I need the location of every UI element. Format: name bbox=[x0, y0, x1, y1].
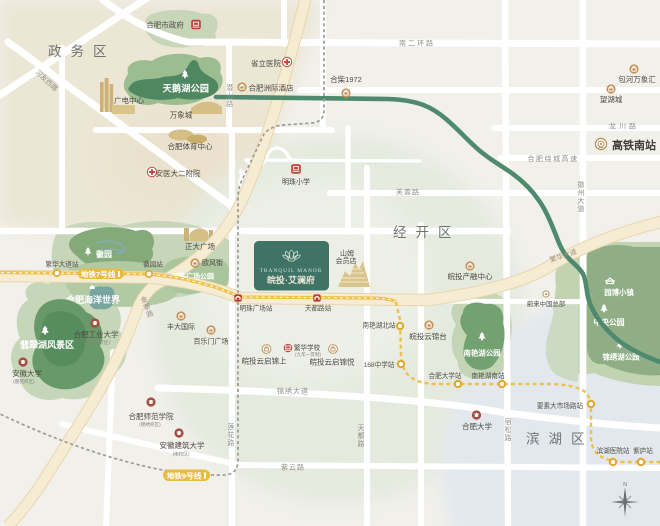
svg-text:天都路站: 天都路站 bbox=[305, 304, 332, 313]
svg-text:TRANQUIL MANOR: TRANQUIL MANOR bbox=[260, 268, 323, 274]
svg-text:合肥大学: 合肥大学 bbox=[462, 421, 492, 431]
svg-text:安医大二附院: 安医大二附院 bbox=[156, 168, 201, 178]
svg-text:(磬苑校区): (磬苑校区) bbox=[13, 378, 35, 385]
svg-text:紫庐站: 紫庐站 bbox=[633, 446, 653, 455]
svg-text:宿松路: 宿松路 bbox=[505, 417, 512, 442]
svg-text:滨湖区: 滨湖区 bbox=[526, 432, 594, 447]
svg-text:省立医院: 省立医院 bbox=[251, 58, 281, 68]
svg-text:芙蓉路: 芙蓉路 bbox=[396, 188, 420, 197]
svg-text:丰大国际: 丰大国际 bbox=[167, 322, 195, 331]
svg-text:合肥体育中心: 合肥体育中心 bbox=[168, 141, 213, 151]
svg-text:合柴1972: 合柴1972 bbox=[330, 74, 362, 84]
svg-text:锦绣湖公园: 锦绣湖公园 bbox=[603, 353, 640, 362]
svg-text:地铁9号线: 地铁9号线 bbox=[167, 471, 202, 481]
svg-text:繁华大道站: 繁华大道站 bbox=[46, 260, 79, 269]
svg-text:合肥师范学院: 合肥师范学院 bbox=[129, 411, 174, 421]
svg-text:蔚来中国总部: 蔚来中国总部 bbox=[527, 299, 566, 308]
svg-text:徽州大道: 徽州大道 bbox=[578, 180, 585, 213]
svg-text:皖投云启锦悦: 皖投云启锦悦 bbox=[310, 357, 355, 367]
svg-text:(翡翠湖校区): (翡翠湖校区) bbox=[84, 339, 110, 346]
svg-text:合肥大学站: 合肥大学站 bbox=[429, 371, 462, 380]
svg-text:翡翠湖风景区: 翡翠湖风景区 bbox=[20, 339, 74, 350]
svg-text:合肥绕城高速: 合肥绕城高速 bbox=[528, 154, 579, 163]
svg-text:安徽大学: 安徽大学 bbox=[12, 368, 42, 378]
svg-text:正大广场: 正大广场 bbox=[185, 241, 215, 251]
svg-text:南艳湖南站: 南艳湖南站 bbox=[472, 371, 505, 380]
svg-text:要素大市场路站: 要素大市场路站 bbox=[537, 401, 584, 410]
svg-text:南艳湖北站: 南艳湖北站 bbox=[363, 321, 396, 330]
svg-text:天都路: 天都路 bbox=[358, 424, 365, 448]
svg-text:皖投产融中心: 皖投产融中心 bbox=[448, 271, 493, 281]
svg-text:山姆: 山姆 bbox=[340, 249, 354, 258]
svg-text:皖投·艾澜府: 皖投·艾澜府 bbox=[267, 274, 315, 285]
svg-text:(锦绣校区): (锦绣校区) bbox=[139, 421, 161, 428]
svg-text:合肥工业大学: 合肥工业大学 bbox=[74, 329, 119, 339]
svg-text:广电中心: 广电中心 bbox=[114, 95, 144, 105]
svg-text:合肥洲际酒店: 合肥洲际酒店 bbox=[249, 83, 294, 93]
svg-text:万象城: 万象城 bbox=[170, 110, 193, 120]
svg-text:天鹅湖公园: 天鹅湖公园 bbox=[163, 83, 210, 94]
svg-text:经开区: 经开区 bbox=[393, 225, 461, 240]
svg-text:N: N bbox=[623, 482, 627, 488]
svg-text:徽园站: 徽园站 bbox=[143, 260, 163, 269]
svg-text:合肥市政府: 合肥市政府 bbox=[146, 20, 184, 30]
svg-text:皖投云锦台: 皖投云锦台 bbox=[409, 331, 447, 341]
svg-text:潜山路: 潜山路 bbox=[226, 83, 233, 108]
svg-text:168中学站: 168中学站 bbox=[364, 360, 395, 369]
svg-text:南二环路: 南二环路 bbox=[399, 39, 435, 48]
svg-text:高铁南站: 高铁南站 bbox=[612, 138, 656, 152]
svg-text:园博小镇: 园博小镇 bbox=[604, 288, 634, 297]
svg-text:百乐门广场: 百乐门广场 bbox=[194, 337, 229, 346]
svg-text:包河万象汇: 包河万象汇 bbox=[618, 74, 656, 84]
svg-text:紫云路: 紫云路 bbox=[281, 463, 305, 472]
svg-text:(南校区): (南校区) bbox=[173, 451, 190, 458]
svg-text:锦绣大道: 锦绣大道 bbox=[277, 387, 309, 396]
svg-text:欧风街: 欧风街 bbox=[202, 258, 223, 267]
svg-text:明珠小学: 明珠小学 bbox=[282, 177, 310, 186]
svg-text:地铁7号线: 地铁7号线 bbox=[81, 269, 116, 279]
svg-text:安徽建筑大学: 安徽建筑大学 bbox=[160, 440, 205, 450]
svg-text:龙川路: 龙川路 bbox=[609, 122, 639, 131]
svg-text:南艳湖公园: 南艳湖公园 bbox=[464, 349, 501, 358]
svg-text:繁华学校: 繁华学校 bbox=[294, 343, 321, 352]
svg-text:徽园: 徽园 bbox=[95, 249, 112, 259]
svg-text:滨湖医院站: 滨湖医院站 bbox=[597, 446, 630, 455]
svg-text:政务区: 政务区 bbox=[48, 44, 116, 59]
svg-text:望湖城: 望湖城 bbox=[600, 94, 623, 104]
svg-text:会员店: 会员店 bbox=[336, 256, 357, 265]
svg-text:明珠广场站: 明珠广场站 bbox=[240, 304, 273, 313]
svg-text:莲花路: 莲花路 bbox=[228, 422, 235, 447]
svg-text:皖投云启锦上: 皖投云启锦上 bbox=[242, 356, 287, 366]
